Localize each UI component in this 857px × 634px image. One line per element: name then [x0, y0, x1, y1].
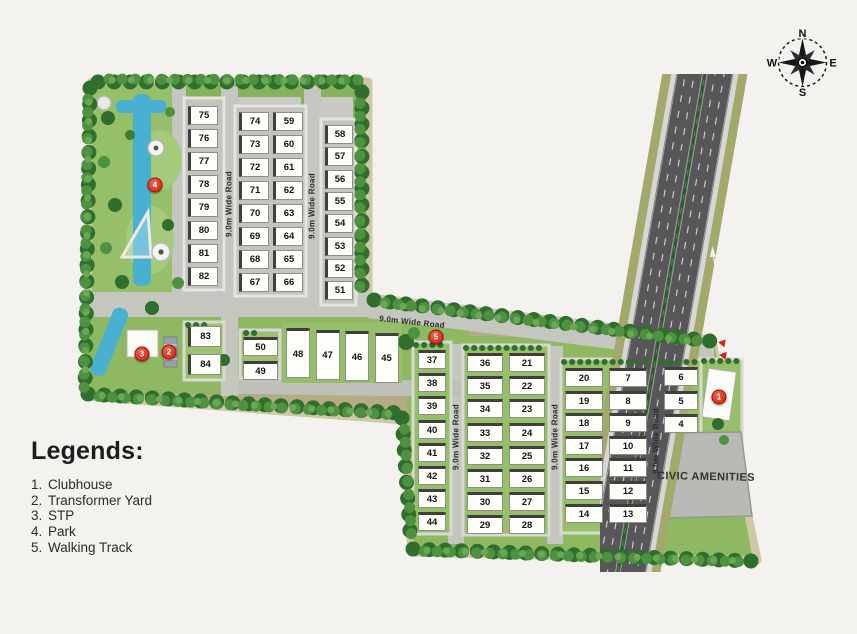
- plot-59: 59: [273, 112, 303, 131]
- plot-82: 82: [188, 267, 218, 286]
- road-label: 9.0m Wide Road: [225, 171, 234, 237]
- legend-item-transformer-yard: 2. Transformer Yard: [31, 493, 152, 509]
- plot-39: 39: [418, 396, 446, 415]
- plot-31: 31: [467, 469, 503, 488]
- exit-arrow-icon: [718, 338, 726, 347]
- plot-7: 7: [609, 368, 647, 387]
- plot-15: 15: [565, 481, 603, 500]
- plot-19: 19: [565, 391, 603, 410]
- plot-62: 62: [273, 181, 303, 200]
- plot-49: 49: [243, 361, 278, 380]
- plot-37: 37: [418, 350, 446, 369]
- plot-61: 61: [273, 158, 303, 177]
- plot-41: 41: [418, 443, 446, 462]
- compass-rose-icon: N E S W: [765, 25, 840, 100]
- marker-4: 4: [148, 178, 163, 193]
- plot-55: 55: [325, 192, 353, 211]
- plot-80: 80: [188, 221, 218, 240]
- plot-21: 21: [509, 353, 545, 372]
- plot-43: 43: [418, 489, 446, 508]
- road-label: 9.0m Wide Road: [551, 404, 560, 470]
- plot-76: 76: [188, 129, 218, 148]
- plot-24: 24: [509, 423, 545, 442]
- legend-item-park: 4. Park: [31, 524, 152, 540]
- plot-35: 35: [467, 376, 503, 395]
- compass-w: W: [767, 58, 778, 70]
- plot-79: 79: [188, 198, 218, 217]
- plot-81: 81: [188, 244, 218, 263]
- plot-47: 47: [316, 330, 340, 380]
- plot-44: 44: [418, 512, 446, 531]
- plot-72: 72: [239, 158, 269, 177]
- legend-item-walking-track: 5. Walking Track: [31, 540, 152, 556]
- plot-30: 30: [467, 492, 503, 511]
- plot-74: 74: [239, 112, 269, 131]
- plot-68: 68: [239, 250, 269, 269]
- plot-52: 52: [325, 259, 353, 278]
- compass-e: E: [829, 58, 836, 70]
- plot-26: 26: [509, 469, 545, 488]
- plot-56: 56: [325, 170, 353, 189]
- plot-84: 84: [188, 354, 221, 375]
- plot-33: 33: [467, 423, 503, 442]
- plot-34: 34: [467, 399, 503, 418]
- road-label: 9.0m Wide Road: [452, 404, 461, 470]
- plot-42: 42: [418, 466, 446, 485]
- plot-45: 45: [375, 333, 399, 383]
- plot-4: 4: [664, 414, 698, 433]
- plot-5: 5: [664, 391, 698, 410]
- plot-67: 67: [239, 273, 269, 292]
- entry-arrow-icon: [719, 351, 727, 360]
- marker-2: 2: [162, 345, 177, 360]
- plot-9: 9: [609, 413, 647, 432]
- road-label: 9.0m Wide Road: [308, 173, 317, 239]
- plot-54: 54: [325, 214, 353, 233]
- legend-item-stp: 3. STP: [31, 508, 152, 524]
- plot-23: 23: [509, 399, 545, 418]
- plot-83: 83: [188, 326, 221, 347]
- legend-item-clubhouse: 1. Clubhouse: [31, 477, 152, 493]
- plot-38: 38: [418, 373, 446, 392]
- plot-78: 78: [188, 175, 218, 194]
- plot-71: 71: [239, 181, 269, 200]
- legends-heading: Legends:: [31, 437, 152, 466]
- civic-amenities-label: CIVIC AMENITIES: [657, 470, 755, 484]
- plot-73: 73: [239, 135, 269, 154]
- plot-13: 13: [609, 504, 647, 523]
- plot-75: 75: [188, 106, 218, 125]
- exit-label: EXIT: [727, 341, 741, 349]
- plot-17: 17: [565, 436, 603, 455]
- plot-6: 6: [664, 367, 698, 386]
- plot-25: 25: [509, 446, 545, 465]
- plot-27: 27: [509, 492, 545, 511]
- plot-22: 22: [509, 376, 545, 395]
- plot-48: 48: [286, 328, 310, 378]
- site-plan: 7576777879808182747372717069686759606162…: [0, 0, 857, 634]
- plot-63: 63: [273, 204, 303, 223]
- plot-32: 32: [467, 446, 503, 465]
- plot-16: 16: [565, 458, 603, 477]
- marker-1: 1: [712, 390, 727, 405]
- plot-58: 58: [325, 125, 353, 144]
- plot-60: 60: [273, 135, 303, 154]
- marker-5: 5: [429, 330, 444, 345]
- plot-11: 11: [609, 458, 647, 477]
- plot-18: 18: [565, 413, 603, 432]
- plot-29: 29: [467, 515, 503, 534]
- plot-51: 51: [325, 281, 353, 300]
- plot-12: 12: [609, 481, 647, 500]
- legends: Legends: 1. Clubhouse 2. Transformer Yar…: [31, 437, 152, 556]
- plot-8: 8: [609, 391, 647, 410]
- plot-70: 70: [239, 204, 269, 223]
- plot-50: 50: [243, 337, 278, 356]
- plot-20: 20: [565, 368, 603, 387]
- plot-46: 46: [345, 331, 369, 381]
- plot-69: 69: [239, 227, 269, 246]
- plot-28: 28: [509, 515, 545, 534]
- plot-10: 10: [609, 436, 647, 455]
- compass-n: N: [799, 28, 807, 40]
- plot-65: 65: [273, 250, 303, 269]
- plot-53: 53: [325, 237, 353, 256]
- plot-57: 57: [325, 147, 353, 166]
- plot-66: 66: [273, 273, 303, 292]
- road-label: 9.0m Wide Road: [652, 408, 661, 474]
- plot-77: 77: [188, 152, 218, 171]
- plot-64: 64: [273, 227, 303, 246]
- compass-s: S: [799, 87, 806, 99]
- marker-3: 3: [135, 347, 150, 362]
- plot-14: 14: [565, 504, 603, 523]
- plot-36: 36: [467, 353, 503, 372]
- plot-40: 40: [418, 420, 446, 439]
